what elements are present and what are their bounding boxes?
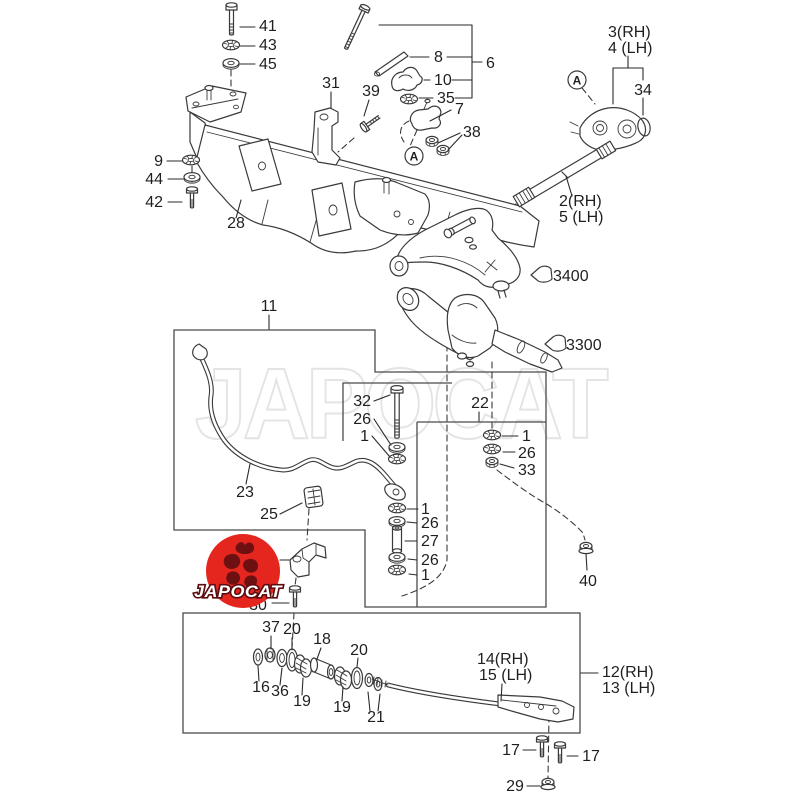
- washer-16-part: [254, 649, 263, 665]
- washer-26-part: [389, 553, 405, 564]
- bushing-19-part: [335, 667, 352, 689]
- bolt-39-part: [359, 113, 382, 133]
- callout-17: 17: [582, 748, 600, 765]
- bushing-25-part: [304, 486, 324, 508]
- stabilizer-bracket-part: [280, 543, 326, 577]
- callout-29: 29: [506, 778, 524, 795]
- callout-28: 28: [227, 215, 245, 232]
- callout-37: 37: [262, 619, 280, 636]
- bolt-6-part: [341, 3, 370, 51]
- tube-18-part: [311, 658, 335, 679]
- bushing-19-part: [295, 655, 312, 677]
- callout-43: 43: [259, 37, 277, 54]
- callout-26: 26: [353, 411, 371, 428]
- view-marker-a1: A: [405, 147, 423, 165]
- callout-3rh: 3(RH): [608, 24, 651, 41]
- callout-19: 19: [293, 693, 311, 710]
- callout-1: 1: [421, 567, 430, 584]
- callout-33: 33: [518, 462, 536, 479]
- view-marker-a2: A: [568, 71, 586, 89]
- callout-4lh: 4 (LH): [608, 40, 652, 57]
- callout-2rh: 2(RH): [559, 193, 602, 210]
- nut-37-part: [265, 648, 275, 662]
- callout-11: 11: [261, 298, 278, 315]
- callout-10: 10: [434, 72, 452, 89]
- callout-8: 8: [434, 49, 443, 66]
- callout-25: 25: [260, 506, 278, 523]
- callout-19: 19: [333, 699, 351, 716]
- bolt-17-part: [555, 742, 566, 763]
- callout-39: 39: [362, 83, 380, 100]
- callout-7: 7: [455, 101, 464, 118]
- callout-45: 45: [259, 56, 277, 73]
- callout-23: 23: [236, 484, 254, 501]
- ring-20-part: [352, 668, 363, 689]
- tension-rod-part: [372, 677, 574, 722]
- callout-41: 41: [259, 18, 277, 35]
- nut-33-part: [486, 457, 498, 467]
- callout-32: 32: [353, 393, 371, 410]
- bracket-31-part: [312, 108, 340, 165]
- washer-1-part: [389, 503, 406, 513]
- part-tag-3400: [531, 266, 552, 282]
- callout-40: 40: [579, 573, 597, 590]
- callout-36: 36: [271, 683, 289, 700]
- callout-3300: 3300: [566, 337, 602, 354]
- callout-26: 26: [421, 515, 439, 532]
- washer-1-part: [389, 565, 406, 575]
- callout-44: 44: [145, 171, 163, 188]
- view-marker-a1-label: A: [410, 150, 419, 164]
- washer-1-part: [389, 454, 406, 464]
- callout-38: 38: [463, 124, 481, 141]
- callout-15lh: 15 (LH): [479, 667, 532, 684]
- bolt-30-part: [290, 586, 301, 607]
- callout-21: 21: [367, 709, 385, 726]
- japocat-logo: JAPOCAT: [194, 534, 283, 608]
- washer-1-part: [484, 430, 501, 440]
- washer-45-part: [223, 59, 239, 70]
- callout-20: 20: [283, 621, 301, 638]
- callout-12rh: 12(RH): [602, 664, 654, 681]
- exploded-parts-diagram: JAPOCAT: [0, 0, 800, 800]
- parts-diagram-page: JAPOCAT: [0, 0, 800, 800]
- nut-40-part: [579, 542, 593, 553]
- nut-35-part: [401, 94, 418, 104]
- callout-22: 22: [471, 395, 489, 412]
- callout-27: 27: [421, 533, 439, 550]
- washer-36-part: [277, 650, 287, 667]
- bolt-42-part: [187, 187, 198, 208]
- callout-16: 16: [252, 679, 270, 696]
- callout-42: 42: [145, 194, 163, 211]
- callout-6: 6: [486, 55, 495, 72]
- callout-9: 9: [154, 153, 163, 170]
- view-marker-a2-label: A: [573, 74, 582, 88]
- callout-35: 35: [437, 90, 455, 107]
- callout-14rh: 14(RH): [477, 651, 529, 668]
- callout-31: 31: [322, 75, 340, 92]
- callout-3400: 3400: [553, 268, 589, 285]
- spacer-27-part: [393, 526, 402, 553]
- washer-26-part: [484, 444, 501, 454]
- nut-29-part: [541, 778, 555, 789]
- callout-18: 18: [313, 631, 331, 648]
- callout-1: 1: [522, 428, 531, 445]
- callout-26: 26: [518, 445, 536, 462]
- clamp-10-part: [392, 67, 423, 90]
- callout-13lh: 13 (LH): [602, 680, 655, 697]
- washer-44-part: [184, 173, 200, 184]
- bolt-41-part: [226, 3, 237, 35]
- washer-26-part: [389, 443, 405, 454]
- callout-20: 20: [350, 642, 368, 659]
- callout-34: 34: [634, 82, 652, 99]
- callout-1: 1: [360, 428, 369, 445]
- japocat-logo-text: JAPOCAT: [194, 582, 283, 601]
- callout-5lh: 5 (LH): [559, 209, 603, 226]
- callout-17: 17: [502, 742, 520, 759]
- washer-9-part: [183, 155, 200, 165]
- washer-43-part: [223, 40, 240, 50]
- bolt-17-part: [537, 736, 548, 757]
